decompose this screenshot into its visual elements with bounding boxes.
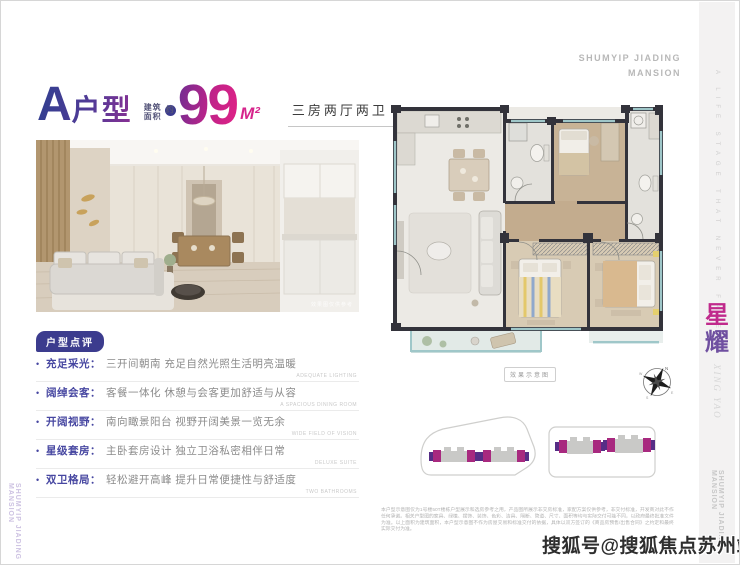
interior-photo: 效果图仅供参考 [36, 140, 359, 312]
brochure-page: A LIFE STAGE THAT NEVER FADES 星 耀 XING Y… [0, 0, 740, 565]
review-item: •阔绰会客：客餐一体化 休憩与会客更加舒适与从容 A SPACIOUS DINI… [36, 382, 359, 411]
review-label: 阔绰会客： [46, 387, 106, 399]
left-brand-vertical: SHUMYIP JIADING MANSION [7, 483, 21, 561]
approx-badge: 约 [165, 105, 176, 116]
area-unit: M² [240, 104, 260, 124]
side-brand-cn-char2: 耀 [699, 329, 735, 356]
review-label: 开阔视野： [46, 416, 106, 428]
compass-icon: N E S W [638, 363, 676, 401]
layout-summary: 三房两厅两卫 [288, 100, 396, 127]
bullet-dot-icon: • [36, 416, 46, 428]
review-en: A SPACIOUS DINING ROOM [280, 402, 357, 408]
photo-caption: 效果图仅供参考 [311, 301, 353, 308]
floorplan-caption: 效果示意图 [504, 367, 556, 382]
watermark: 搜狐号@搜狐焦点苏州站 [542, 531, 740, 558]
siteplan [407, 411, 663, 487]
compass-s: S [646, 396, 649, 400]
side-brand-cn-char1: 星 [699, 302, 735, 329]
brand-top-line2: MANSION [579, 66, 681, 81]
area-value: 99 [178, 82, 237, 129]
plan-sofa [479, 211, 501, 295]
review-item: •充足采光：三开间朝南 充足自然光照生活明亮温暖 ADEQUATE LIGHTI… [36, 353, 359, 382]
review-text: 三开间朝南 充足自然光照生活明亮温暖 [106, 358, 296, 370]
area-label: 建筑 面积 约 [144, 103, 174, 121]
side-brand-en: XING YAO [712, 364, 722, 420]
review-text: 主卧套房设计 独立卫浴私密相伴日常 [106, 445, 285, 457]
review-badge: 户型点评 [36, 331, 104, 352]
bullet-dot-icon: • [36, 445, 46, 457]
header: A户型 建筑 面积 约 99 M² 三房两厅两卫 [37, 77, 396, 129]
bullet-dot-icon: • [36, 358, 46, 370]
review-en: ADEQUATE LIGHTING [296, 373, 357, 379]
bullet-dot-icon: • [36, 387, 46, 399]
review-item: •星级套房：主卧套房设计 独立卫浴私密相伴日常 DELUXE SUITE [36, 440, 359, 469]
interior-photo-illustration [36, 140, 359, 312]
compass-w: W [639, 372, 643, 376]
review-text: 轻松避开高峰 提升日常便捷性与舒适度 [106, 474, 296, 486]
disclaimer-text: 本户型示意图仅为1号楼50T楼栋户型展示和选房参考之用，产品图所展示非交房标准，… [381, 507, 674, 533]
review-item: •双卫格局：轻松避开高峰 提升日常便捷性与舒适度 TWO BATHROOMS [36, 469, 359, 498]
review-label: 充足采光： [46, 358, 106, 370]
review-text: 客餐一体化 休憩与会客更加舒适与从容 [106, 387, 296, 399]
area-label-line2: 面积 [144, 112, 162, 121]
sofa [50, 252, 164, 296]
brand-top-line1: SHUMYIP JIADING [579, 51, 681, 66]
side-brand-cn: 星 耀 [699, 302, 735, 356]
review-list: •充足采光：三开间朝南 充足自然光照生活明亮温暖 ADEQUATE LIGHTI… [36, 353, 359, 498]
floorplan [387, 101, 669, 359]
review-en: DELUXE SUITE [315, 460, 357, 466]
unit-letter: A [37, 78, 72, 131]
review-item: •开阔视野：南向瞰景阳台 视野开阔美景一览无余 WIDE FIELD OF VI… [36, 411, 359, 440]
bullet-dot-icon: • [36, 474, 46, 486]
brand-top-right: SHUMYIP JIADING MANSION [579, 51, 681, 81]
review-label: 星级套房： [46, 445, 106, 457]
compass-e: E [671, 391, 674, 395]
area-label-line1: 建筑 [144, 103, 162, 112]
floorplan-svg [387, 101, 669, 359]
review-en: TWO BATHROOMS [306, 489, 357, 495]
review-label: 双卫格局： [46, 474, 106, 486]
side-band: A LIFE STAGE THAT NEVER FADES 星 耀 XING Y… [699, 2, 735, 563]
unit-word: 户型 [72, 95, 132, 127]
review-text: 南向瞰景阳台 视野开阔美景一览无余 [106, 416, 285, 428]
compass-n: N [665, 366, 668, 371]
unit-name: A户型 [37, 81, 132, 129]
review-en: WIDE FIELD OF VISION [292, 431, 357, 437]
siteplan-building-outline-1 [421, 417, 535, 475]
plan-master-bedroom [593, 243, 659, 316]
